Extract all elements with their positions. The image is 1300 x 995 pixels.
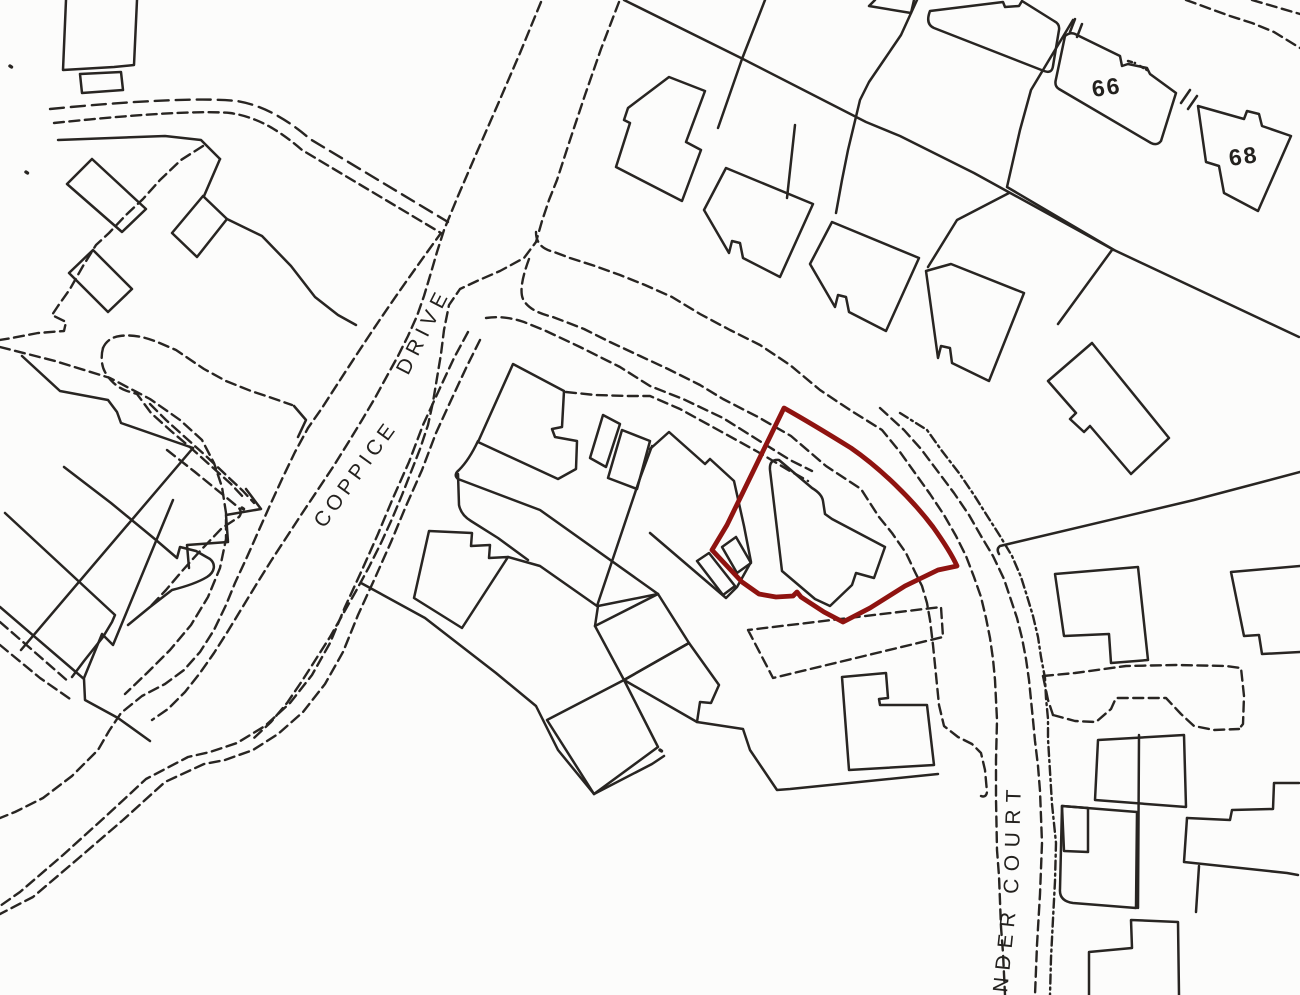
svg-text:68: 68: [1227, 141, 1260, 171]
svg-text:COURT: COURT: [1000, 782, 1026, 894]
svg-text:66: 66: [1090, 72, 1123, 102]
